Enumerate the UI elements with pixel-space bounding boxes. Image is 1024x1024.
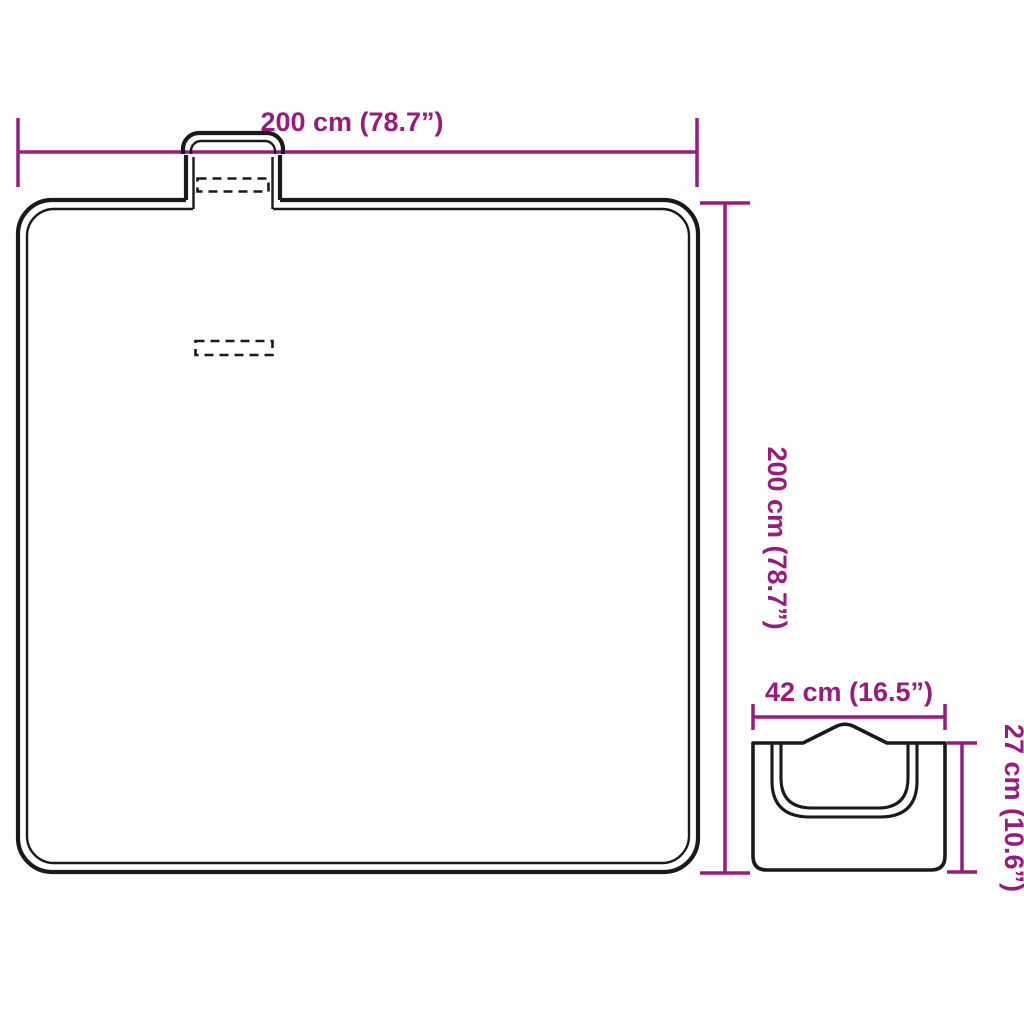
handle-tab bbox=[186, 155, 280, 209]
diagram-stage: 200 cm (78.7”) 200 cm (78.7”) 42 cm (16.… bbox=[0, 0, 1024, 1024]
folded-width-dimension-label: 42 cm (16.5”) bbox=[765, 677, 933, 707]
blanket-outline-inner bbox=[27, 209, 689, 863]
height-dimension-line bbox=[700, 203, 750, 873]
stitch-mark-body bbox=[196, 341, 273, 355]
folded-height-dimension-label: 27 cm (10.6”) bbox=[999, 724, 1024, 892]
stitch-mark-handle bbox=[198, 179, 269, 192]
blanket-unfolded bbox=[18, 133, 698, 872]
dimension-diagram: 200 cm (78.7”) 200 cm (78.7”) 42 cm (16.… bbox=[0, 0, 1024, 1024]
height-dimension-label: 200 cm (78.7”) bbox=[762, 446, 792, 629]
folded-height-dimension-line bbox=[947, 743, 977, 872]
blanket-folded bbox=[753, 724, 945, 870]
width-dimension-label: 200 cm (78.7”) bbox=[260, 107, 443, 137]
blanket-outline-outer bbox=[18, 200, 698, 872]
